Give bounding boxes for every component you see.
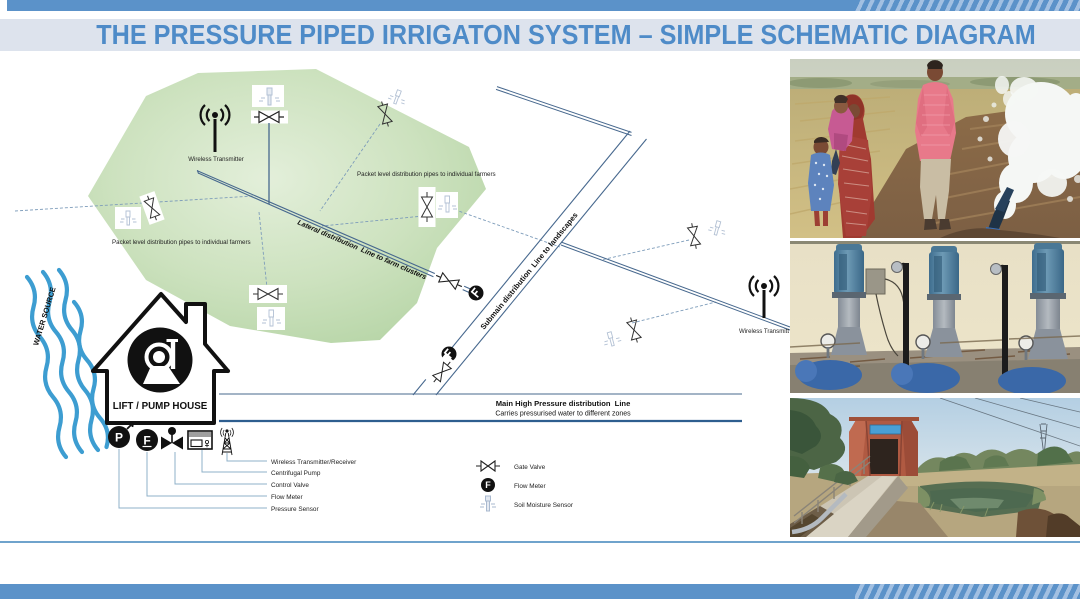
svg-text:Control Valve: Control Valve — [271, 482, 309, 489]
svg-text:Submain distribution Line to: Submain distribution Line to landscapes — [479, 211, 580, 332]
svg-text:Wireless Transmitter: Wireless Transmitter — [188, 156, 244, 163]
svg-text:Wireless Transmitter/Receiver: Wireless Transmitter/Receiver — [271, 459, 357, 466]
svg-text:Pressure Sensor: Pressure Sensor — [271, 506, 319, 513]
svg-text:LIFT / PUMP HOUSE: LIFT / PUMP HOUSE — [113, 401, 208, 412]
svg-text:Carries pressurised water to d: Carries pressurised water to different z… — [495, 411, 631, 418]
svg-text:Soil Moisture Sensor: Soil Moisture Sensor — [514, 502, 574, 509]
svg-text:F: F — [485, 480, 491, 490]
svg-text:P: P — [115, 430, 123, 444]
svg-text:Packet level distribution pipe: Packet level distribution pipes to indiv… — [112, 239, 251, 246]
svg-text:Flow Meter: Flow Meter — [514, 483, 546, 490]
svg-text:Centrifugal Pump: Centrifugal Pump — [271, 470, 321, 477]
svg-text:F: F — [143, 433, 150, 447]
svg-text:Flow Meter: Flow Meter — [271, 494, 303, 501]
svg-text:Gate Valve: Gate Valve — [514, 464, 546, 471]
svg-text:Packet level distribution pipe: Packet level distribution pipes to indiv… — [357, 171, 496, 178]
svg-text:Main High Pressure distributio: Main High Pressure distribution Line — [496, 399, 631, 408]
svg-text:Wireless Transmitt: Wireless Transmitt — [739, 328, 789, 335]
